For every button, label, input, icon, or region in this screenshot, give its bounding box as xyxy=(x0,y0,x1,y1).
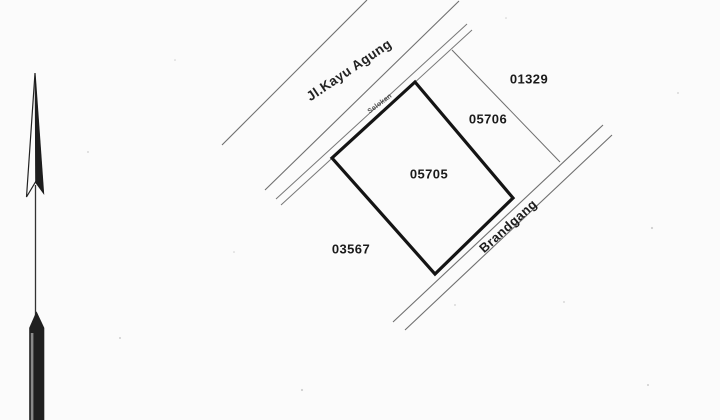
parcel-number-east-neighbor: 05706 xyxy=(469,112,507,127)
parcel-number-southwest-neighbor: 03567 xyxy=(332,242,370,257)
scan-noise xyxy=(87,17,679,391)
parcel-number-main: 05705 xyxy=(410,167,448,182)
road-edge-lower xyxy=(265,1,459,190)
north-arrow-head-fill xyxy=(35,73,44,193)
north-arrow-icon xyxy=(27,73,45,420)
north-arrow-tail-highlight xyxy=(31,333,34,420)
survey-map: Jl.Kayu Agung Selokan Brandgang 05705 01… xyxy=(0,0,720,420)
parcel-number-north-neighbor: 01329 xyxy=(510,72,548,87)
